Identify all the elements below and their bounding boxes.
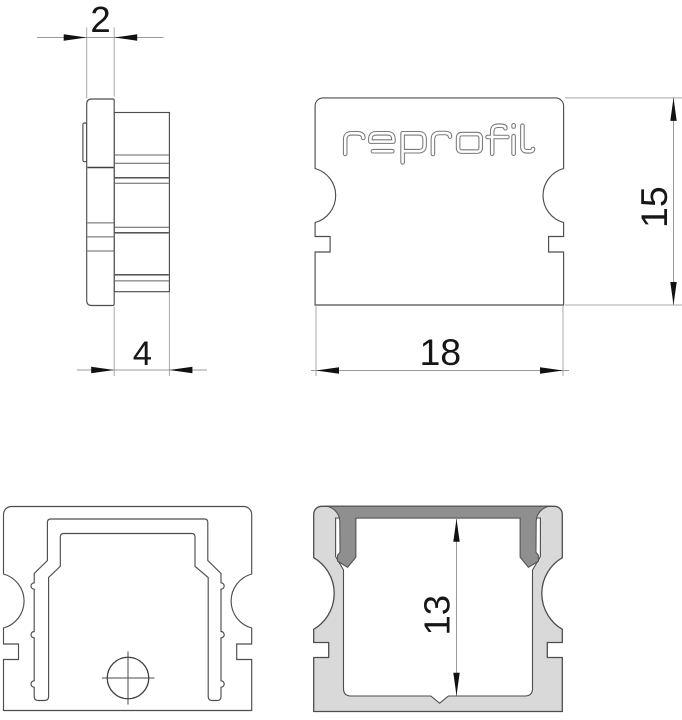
- svg-text:15: 15: [633, 186, 675, 228]
- svg-text:4: 4: [133, 335, 152, 373]
- svg-text:18: 18: [419, 331, 461, 373]
- svg-text:13: 13: [417, 595, 458, 636]
- svg-text:2: 2: [90, 0, 110, 40]
